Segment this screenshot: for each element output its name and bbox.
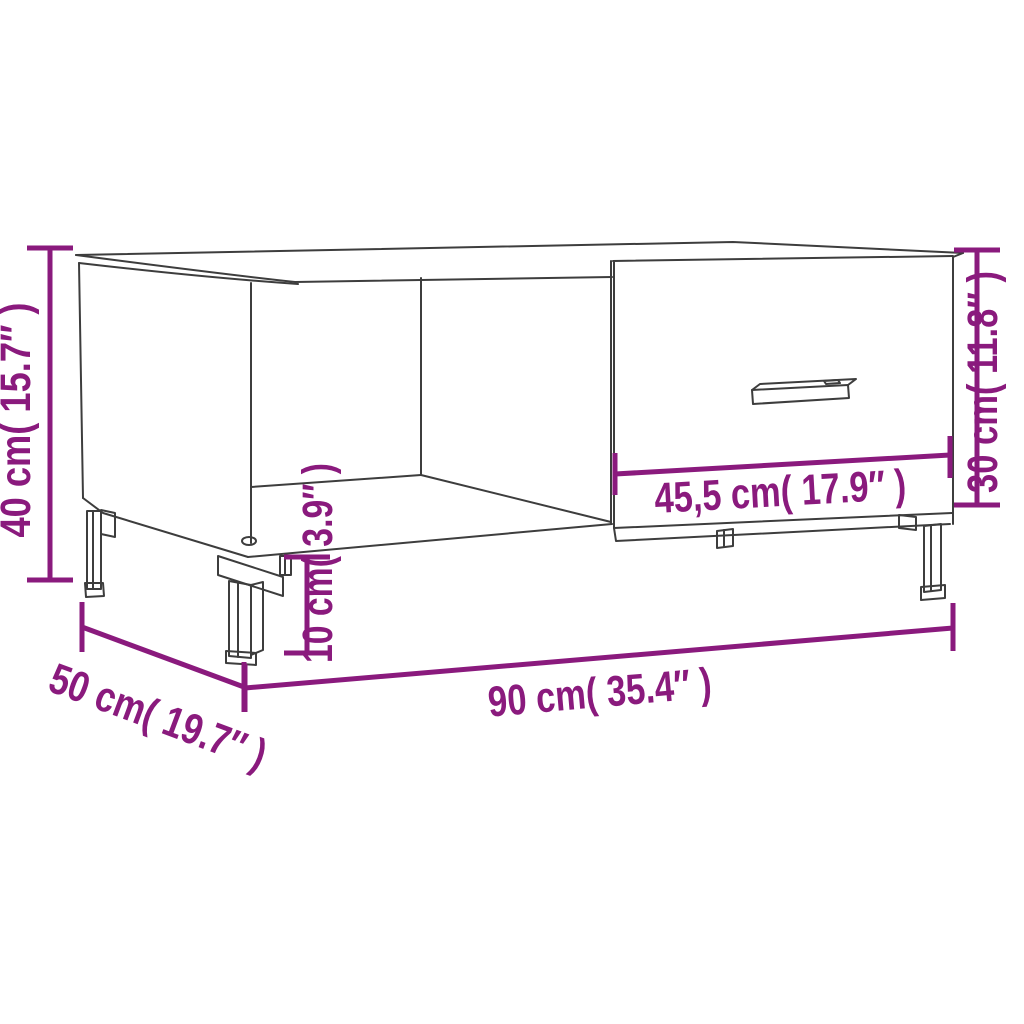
dimension-label: 90 cm( 35.4″ ) (486, 659, 713, 726)
shelf-right-edge (421, 475, 611, 522)
dimension-label: 10 cm( 3.9″ ) (294, 463, 342, 663)
left-panel-outer-edge (79, 263, 83, 498)
leg-front-left (85, 510, 115, 597)
diagram-canvas: 40 cm( 15.7″ ) 30 cm( 11.8″ ) 10 cm( 3.9… (0, 0, 1024, 1024)
tabletop-back-edge (76, 242, 963, 255)
dimension-overall-height: 40 cm( 15.7″ ) (0, 248, 73, 580)
tabletop-band-lower-edge (79, 263, 298, 284)
furniture-dimension-diagram: 40 cm( 15.7″ ) 30 cm( 11.8″ ) 10 cm( 3.9… (0, 0, 1024, 1024)
leg-back-middle (717, 529, 733, 548)
tabletop-front-edge (76, 255, 612, 282)
dimension-right-section-height: 30 cm( 11.8″ ) (954, 250, 1007, 505)
drawer-top-edge (613, 256, 953, 261)
tabletop (76, 242, 963, 284)
dimension-ground-clearance: 10 cm( 3.9″ ) (284, 463, 342, 663)
furniture-drawing (76, 242, 963, 665)
dimension-drawer-width: 45,5 cm( 17.9″ ) (615, 436, 950, 523)
dimension-label: 30 cm( 11.8″ ) (959, 271, 1007, 493)
dimension-overall-width: 90 cm( 35.4″ ) (245, 603, 953, 727)
leg-front-right (899, 515, 945, 600)
dimension-label: 40 cm( 15.7″ ) (0, 303, 40, 538)
peg-detail (242, 537, 256, 545)
left-panel-bottom-edge (83, 498, 248, 557)
leg-front-middle (218, 556, 283, 665)
left-side-panel (79, 263, 256, 557)
dimension-label: 50 cm( 19.7″ ) (43, 654, 273, 779)
drawer-handle-icon (752, 379, 856, 404)
